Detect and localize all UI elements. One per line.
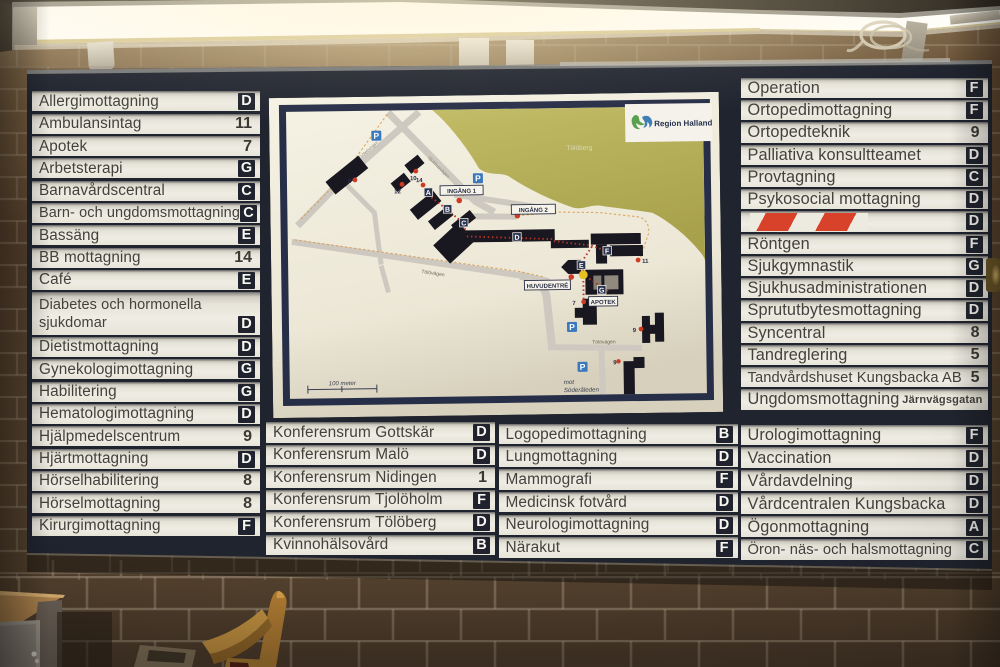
svg-text:A: A (426, 190, 431, 197)
svg-text:INGÅNG 2: INGÅNG 2 (519, 207, 549, 214)
svg-text:Tölövägen: Tölövägen (592, 339, 616, 345)
svg-text:E: E (579, 263, 584, 270)
svg-text:APOTEK: APOTEK (591, 300, 617, 306)
svg-text:P: P (373, 131, 379, 141)
svg-text:C: C (461, 220, 466, 227)
svg-text:Tölöberg: Tölöberg (566, 145, 592, 152)
svg-text:P: P (475, 173, 481, 183)
svg-text:11: 11 (642, 259, 649, 265)
svg-text:12: 12 (394, 189, 401, 195)
svg-text:B: B (445, 207, 450, 214)
svg-text:G: G (599, 287, 605, 294)
svg-text:100 meter: 100 meter (329, 381, 357, 387)
svg-text:INGÅNG 1: INGÅNG 1 (447, 188, 477, 195)
svg-text:P: P (569, 322, 575, 332)
svg-text:D: D (514, 235, 519, 242)
svg-text:Region Halland: Region Halland (654, 118, 712, 128)
svg-text:Söderåleden: Söderåleden (564, 387, 600, 394)
svg-text:mot: mot (564, 379, 575, 386)
svg-text:14: 14 (416, 178, 423, 184)
svg-text:P: P (580, 362, 586, 372)
